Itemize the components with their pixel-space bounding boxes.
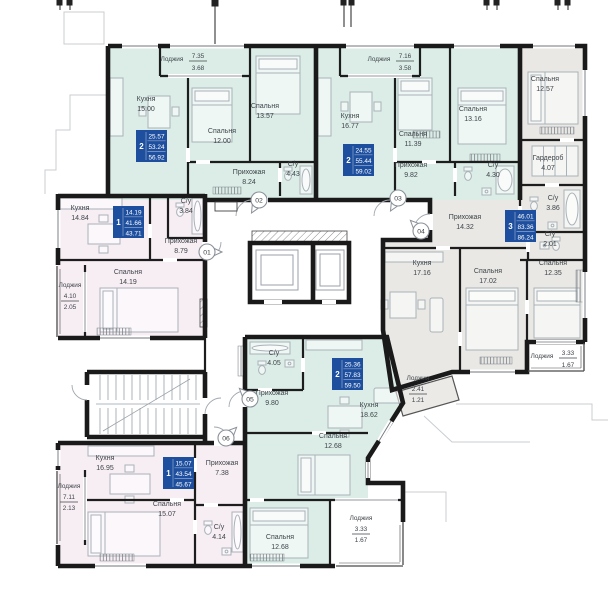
room-area: 12.68 (324, 443, 342, 450)
apartment-pin-02[interactable]: 02 (251, 192, 267, 213)
room-name: Прихожая (256, 390, 289, 397)
room-name: С/у (288, 161, 299, 168)
loggia-area-over: 3.33 (562, 350, 575, 357)
radiator (213, 187, 241, 194)
badge-total-area: 43.71 (126, 231, 142, 238)
room-name: Спальня (153, 501, 181, 508)
badge-rooms-count: 2 (346, 156, 351, 165)
badge-living-area: 15.07 (176, 461, 192, 468)
pin-number: 05 (246, 396, 254, 403)
radiator (100, 554, 134, 561)
badge-total-area: 59.50 (345, 383, 361, 390)
room-name: Спальня (208, 128, 236, 135)
apartment-pin-01[interactable]: 01 (199, 244, 222, 260)
bed (88, 512, 160, 556)
room-area: 13.57 (256, 113, 274, 120)
loggia-area-under: 3.58 (399, 65, 412, 72)
loggia-area-over: 7.11 (63, 494, 75, 501)
loggia-name: Лоджия (407, 375, 430, 382)
vent-shafts (200, 231, 347, 327)
room-name: Прихожая (395, 162, 428, 169)
bed (298, 455, 350, 495)
loggia-area-over: 2.41 (412, 386, 425, 393)
badge-rooms-count: 1 (166, 469, 171, 478)
room-name: Спальня (539, 260, 567, 267)
badge-area: 41.66 (126, 220, 142, 227)
area-badge-06[interactable]: 115.0743.5445.67 (163, 457, 194, 489)
room-area: 13.16 (464, 116, 482, 123)
room-area: 14.84 (71, 215, 89, 222)
room-name: Спальня (531, 76, 559, 83)
badge-area: 83.36 (518, 224, 534, 231)
badge-area: 43.54 (176, 471, 192, 478)
room-name: Кухня (341, 113, 360, 120)
room-area: 2.01 (543, 241, 557, 248)
axis-markers (57, 0, 570, 44)
loggia-area-over: 4.10 (64, 293, 77, 300)
badge-living-area: 24.55 (356, 148, 372, 155)
loggia-area-under: 2.05 (64, 304, 77, 311)
badge-living-area: 25.36 (345, 362, 361, 369)
room-area: 16.77 (341, 123, 359, 130)
loggia-area-under: 2.13 (63, 505, 76, 512)
room-area: 9.80 (265, 400, 279, 407)
room-area: 12.35 (544, 270, 562, 277)
bed (398, 78, 432, 130)
sink (222, 548, 231, 555)
badge-living-area: 25.57 (149, 134, 165, 141)
loggia-area-under: 3.68 (192, 65, 205, 72)
radiator (480, 357, 512, 364)
area-badge-02[interactable]: 225.5753.2456.92 (136, 130, 167, 162)
badge-rooms-count: 2 (139, 142, 144, 151)
badge-rooms-count: 2 (335, 370, 340, 379)
pin-number: 01 (203, 249, 211, 256)
radiator (97, 328, 131, 335)
area-badge-01[interactable]: 114.1941.6643.71 (113, 206, 144, 238)
elevator-shafts (256, 250, 344, 290)
badge-total-area: 56.92 (149, 155, 165, 162)
radiator (540, 127, 574, 134)
pin-number: 04 (417, 228, 425, 235)
bed (466, 288, 518, 350)
room-area: 4.05 (267, 360, 281, 367)
loggia-area-over: 7.16 (399, 53, 412, 60)
room-name: Спальня (251, 103, 279, 110)
bathtub (232, 512, 243, 552)
pin-number: 02 (255, 197, 263, 204)
room-area: 12.68 (271, 544, 289, 551)
toilet (464, 167, 472, 180)
pin-number: 03 (394, 195, 402, 202)
loggia-area-under: 1.67 (355, 537, 368, 544)
toilet (204, 521, 212, 534)
room-area: 9.82 (404, 172, 418, 179)
room-name: С/у (214, 524, 225, 531)
room-area: 7.38 (215, 470, 229, 477)
loggia-name: Лоджия (161, 56, 184, 63)
bed (534, 288, 580, 338)
pin-number: 06 (222, 435, 230, 442)
badge-total-area: 59.02 (356, 169, 372, 176)
bathtub (192, 198, 203, 234)
kitchen-counter (110, 78, 123, 136)
room-name: Гардероб (533, 154, 564, 162)
loggia-area-over: 3.33 (355, 526, 368, 533)
sink (482, 188, 491, 195)
badge-rooms-count: 1 (116, 218, 121, 227)
bathtub (496, 166, 514, 194)
loggia-name: Лоджия (531, 353, 554, 360)
room-area: 8.24 (242, 179, 256, 186)
room-area: 16.95 (96, 465, 114, 472)
room-area: 4.43 (286, 171, 300, 178)
badge-area: 55.44 (356, 158, 372, 165)
floor-plan-canvas: Кухня14.84С/у3.84Прихожая8.79Спальня14.1… (0, 0, 608, 600)
kitchen-counter (60, 198, 122, 209)
room-name: Кухня (137, 96, 156, 103)
room-name: Прихожая (165, 238, 198, 245)
area-badge-04[interactable]: 346.0183.3686.24 (505, 210, 536, 242)
toilet (530, 197, 538, 210)
loggia-area-under: 1.21 (412, 397, 425, 404)
kitchen-counter (318, 78, 331, 136)
room-area: 15.00 (137, 106, 155, 113)
room-name: Кухня (71, 205, 90, 212)
room-area: 18.62 (360, 412, 378, 419)
room-name: С/у (545, 231, 556, 238)
sink (285, 360, 294, 367)
room-area: 11.39 (405, 141, 422, 148)
electrical-niche (215, 202, 237, 211)
room-area: 3.86 (546, 205, 560, 212)
room-name: Спальня (266, 534, 294, 541)
room-name: Кухня (413, 260, 432, 267)
room-name: Спальня (459, 106, 487, 113)
loggia-name: Лоджия (59, 282, 82, 289)
room-name: С/у (488, 162, 499, 169)
badge-rooms-count: 3 (508, 222, 513, 231)
bathtub (300, 166, 312, 194)
loggia-05 (330, 500, 403, 566)
room-name: Спальня (319, 433, 347, 440)
sink (548, 222, 557, 229)
room-area: 4.07 (541, 165, 555, 172)
badge-total-area: 45.67 (176, 482, 192, 489)
kitchen-counter (306, 340, 362, 350)
area-badge-03[interactable]: 224.5555.4459.02 (343, 144, 374, 176)
room-name: Прихожая (233, 169, 266, 176)
loggia-name: Лоджия (368, 56, 391, 63)
loggia-area-under: 1.67 (562, 362, 575, 369)
toilet (258, 361, 266, 374)
sofa (430, 298, 443, 332)
area-badge-05[interactable]: 225.3657.8359.50 (332, 358, 363, 390)
room-name: Спальня (399, 131, 427, 138)
room-name: Кухня (360, 402, 379, 409)
badge-living-area: 14.19 (126, 210, 142, 217)
room-area: 4.30 (486, 172, 500, 179)
apartment-pin-03[interactable]: 03 (390, 190, 406, 211)
loggia-name: Лоджия (58, 483, 81, 490)
room-name: Прихожая (449, 214, 482, 221)
room-area: 8.79 (174, 248, 188, 255)
room-area: 15.07 (158, 511, 176, 518)
room-area: 4.14 (212, 534, 226, 541)
room-area: 17.02 (479, 278, 497, 285)
room-name: С/у (181, 198, 192, 205)
badge-total-area: 86.24 (518, 235, 534, 242)
bed (100, 288, 178, 332)
apartment-pin-04[interactable]: 04 (410, 220, 429, 239)
room-name: Спальня (114, 269, 142, 276)
room-area: 12.57 (536, 86, 554, 93)
room-area: 14.32 (456, 224, 474, 231)
room-name: С/у (269, 350, 280, 357)
badge-living-area: 46.01 (518, 214, 534, 221)
room-name: Кухня (96, 455, 115, 462)
room-area: 17.16 (413, 270, 431, 277)
room-area: 12.00 (213, 138, 231, 145)
room-area: 14.19 (119, 279, 137, 286)
room-name: Спальня (474, 268, 502, 275)
loggia-name: Лоджия (350, 515, 373, 522)
bathtub (564, 190, 580, 228)
loggia-area-over: 7.35 (192, 53, 205, 60)
badge-area: 57.83 (345, 372, 361, 379)
room-area: 3.84 (179, 208, 193, 215)
radiator (470, 154, 500, 161)
staircase (96, 375, 200, 434)
radiator (576, 270, 583, 302)
floor-plan-page: Кухня14.84С/у3.84Прихожая8.79Спальня14.1… (0, 0, 608, 600)
room-name: Прихожая (206, 460, 239, 467)
badge-area: 53.24 (149, 144, 165, 151)
room-name: С/у (548, 195, 559, 202)
radiator (250, 554, 284, 561)
